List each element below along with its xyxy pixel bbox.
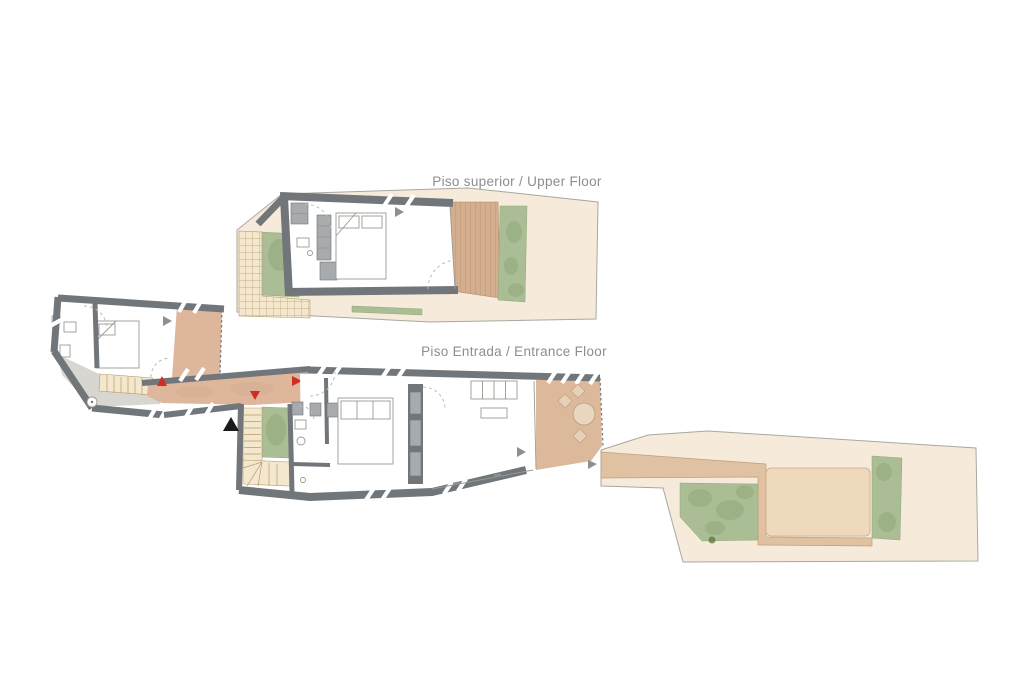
upper-floor-plan bbox=[237, 188, 598, 322]
stair-winder bbox=[243, 460, 290, 486]
tree-texture bbox=[705, 521, 725, 535]
tree-texture bbox=[736, 485, 754, 499]
closet bbox=[292, 402, 303, 415]
plant-texture bbox=[508, 283, 524, 297]
entrance-floor-label: Piso Entrada / Entrance Floor bbox=[421, 344, 607, 359]
coffee-table bbox=[481, 408, 507, 418]
closet bbox=[410, 392, 421, 414]
wall-sink bbox=[297, 238, 309, 247]
bath-sink bbox=[64, 322, 76, 332]
plant-texture bbox=[506, 221, 522, 243]
floor-plan-drawing: Piso superior / Upper Floor Piso Entrada… bbox=[0, 0, 1024, 682]
column-dot bbox=[91, 401, 93, 403]
bush bbox=[709, 537, 716, 544]
sunken-patio bbox=[766, 468, 870, 536]
upper-left-wall bbox=[284, 197, 289, 296]
bed-main bbox=[338, 398, 393, 464]
bath-partition bbox=[95, 303, 97, 368]
tree-texture bbox=[688, 489, 712, 507]
sofa bbox=[471, 381, 517, 399]
tree-texture bbox=[878, 512, 896, 532]
closet bbox=[310, 403, 321, 416]
black-entrance-arrow bbox=[223, 417, 239, 431]
plant-texture bbox=[504, 257, 518, 275]
plant-texture bbox=[266, 414, 286, 446]
round-table bbox=[573, 403, 595, 425]
left-patio bbox=[172, 306, 222, 378]
bed-outline bbox=[336, 213, 386, 279]
cabinet bbox=[320, 262, 337, 280]
bed-upper bbox=[336, 213, 386, 279]
closet-unit bbox=[317, 215, 331, 260]
bed-left bbox=[96, 321, 139, 368]
stairwell-right-wall bbox=[290, 404, 292, 494]
bed-outline bbox=[96, 321, 139, 368]
bath-bottom-partition bbox=[293, 464, 330, 465]
upper-floor-label: Piso superior / Upper Floor bbox=[432, 174, 602, 189]
garden bbox=[601, 431, 978, 562]
closet bbox=[327, 403, 338, 417]
bath-wc bbox=[60, 345, 70, 357]
tree-texture bbox=[876, 463, 892, 481]
closet bbox=[410, 452, 421, 476]
terrace bbox=[536, 377, 602, 470]
closet bbox=[410, 420, 421, 446]
floor-texture bbox=[175, 386, 215, 398]
bath-sink bbox=[295, 420, 306, 429]
gray-view-arrow-terrace bbox=[588, 460, 597, 469]
tree-texture bbox=[716, 500, 744, 520]
bed-outline bbox=[338, 398, 393, 464]
corridor-bottom-wall bbox=[164, 406, 241, 415]
deck-plank-lines bbox=[450, 202, 500, 298]
stairwell-left-wall bbox=[239, 404, 241, 490]
upper-bottom-wall bbox=[285, 290, 458, 292]
